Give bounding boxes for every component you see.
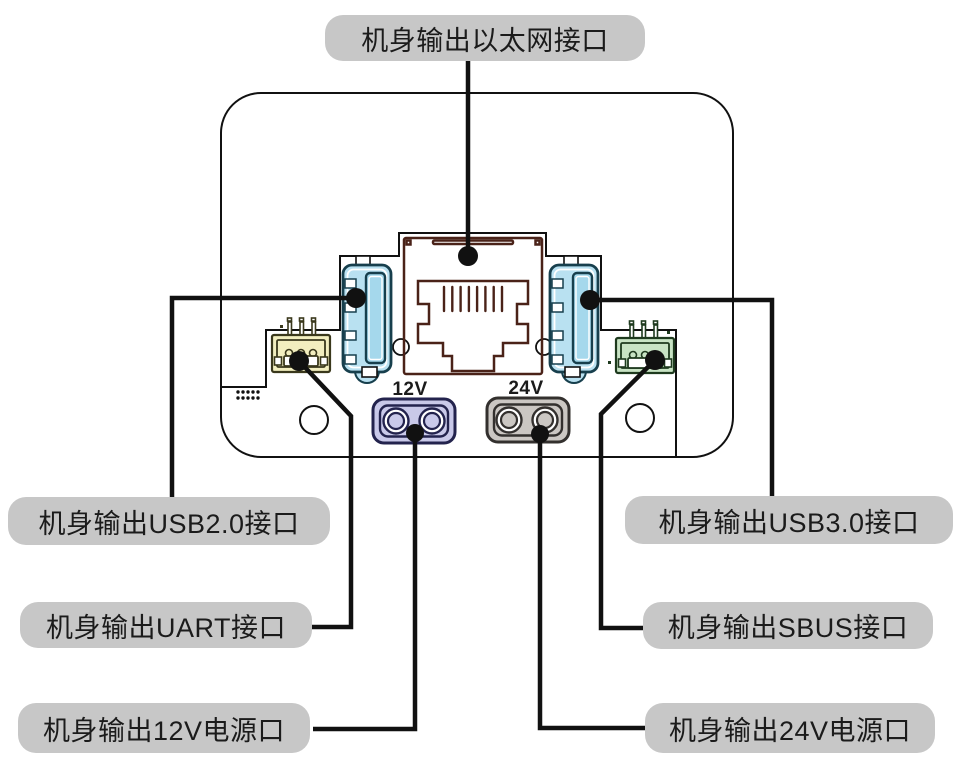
label-uart: 机身输出UART接口 (20, 602, 312, 648)
port-diagram: 12V 24V (0, 0, 964, 770)
usb3-port (550, 256, 598, 383)
rj45-jack-outline (418, 281, 528, 371)
anchor-uart (289, 351, 309, 371)
left-mount-hole (300, 406, 328, 434)
rj45-pins (444, 287, 502, 311)
left-bump (393, 339, 409, 355)
leader-usb2 (172, 298, 356, 497)
label-24v: 机身输出24V电源口 (645, 703, 935, 753)
label-sbus: 机身输出SBUS接口 (643, 602, 933, 649)
anchor-24v (531, 425, 549, 443)
v12-marking: 12V (392, 379, 427, 400)
label-ethernet: 机身输出以太网接口 (325, 15, 645, 61)
usb2-port (343, 256, 391, 383)
label-12v: 机身输出12V电源口 (18, 703, 310, 753)
uart-pins (288, 318, 316, 336)
sbus-port (608, 321, 674, 373)
sbus-pins (630, 321, 658, 339)
anchor-12v (406, 424, 424, 442)
label-usb3: 机身输出USB3.0接口 (625, 496, 953, 544)
anchor-usb3 (580, 290, 600, 310)
leader-12v (313, 433, 415, 729)
leader-sbus (601, 360, 655, 628)
anchor-ethernet (458, 246, 478, 266)
label-usb2: 机身输出USB2.0接口 (8, 497, 330, 545)
leader-uart (299, 361, 351, 627)
anchor-sbus (645, 350, 665, 370)
v24-marking: 24V (508, 378, 543, 399)
device-illustration: 12V 24V (0, 0, 964, 770)
device-body-outline (221, 93, 733, 457)
leader-24v (540, 434, 648, 728)
power-24v-port: 24V (487, 378, 569, 442)
anchor-usb2 (346, 288, 366, 308)
dot-grid (236, 390, 259, 399)
right-mount-hole (626, 404, 654, 432)
